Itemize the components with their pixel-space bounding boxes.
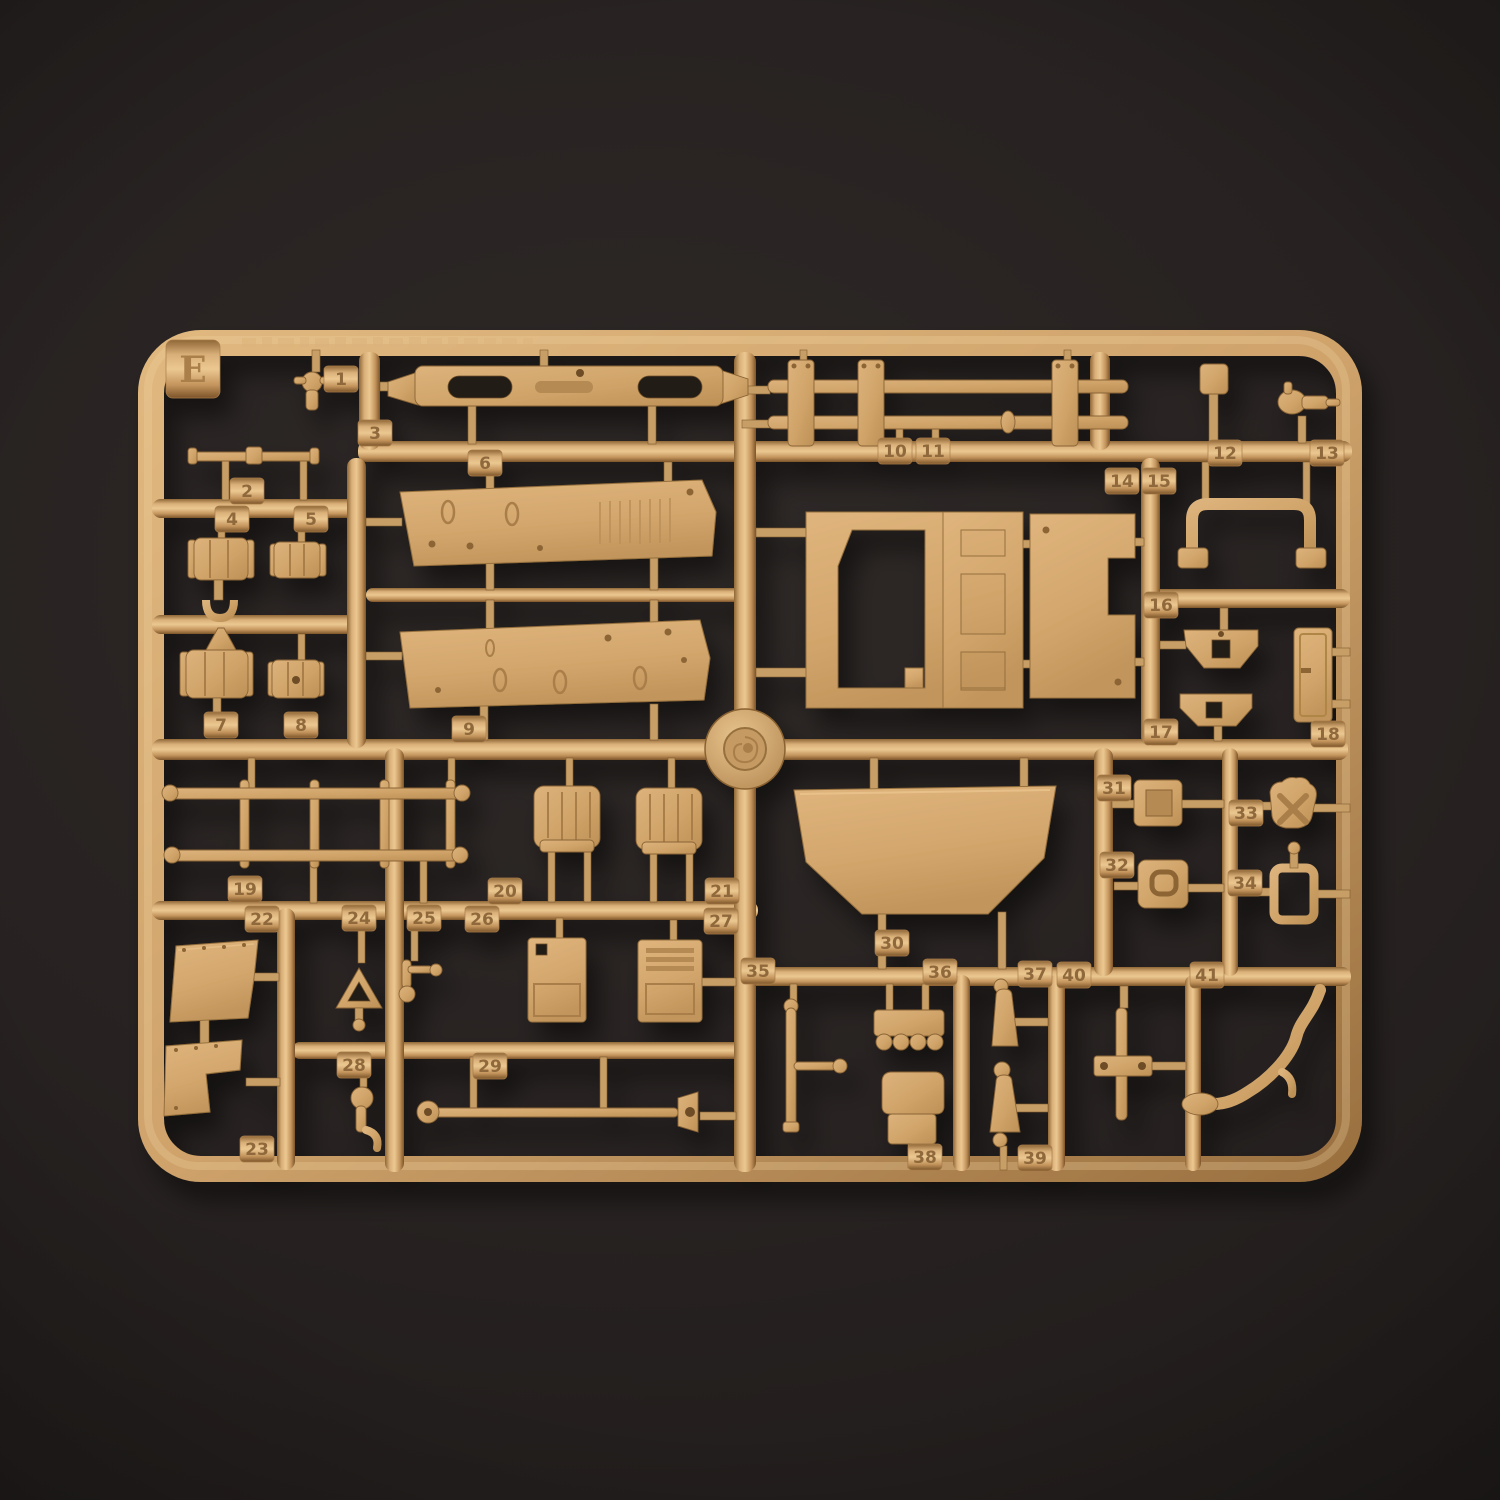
part-hull-panel-lower — [400, 620, 710, 708]
runner-segment — [347, 458, 366, 748]
part-number-tab: 21 — [705, 878, 739, 904]
part-warning-triangle — [336, 968, 382, 1031]
part-number-tab: 17 — [1144, 719, 1178, 745]
part-number-tab: 32 — [1100, 852, 1134, 878]
part-number-label: 27 — [709, 912, 733, 932]
part-number-label: 7 — [215, 716, 227, 736]
part-number-tab: 18 — [1311, 721, 1345, 747]
part-figure-lever-upper — [992, 979, 1018, 1046]
part-number-tab: 1 — [324, 366, 358, 392]
part-bumper-beam — [388, 366, 748, 406]
part-floor-plate — [794, 786, 1056, 914]
part-number-label: 25 — [412, 909, 436, 929]
part-seat-20 — [534, 786, 600, 852]
part-number-label: 4 — [226, 510, 238, 530]
photo-background: E — [0, 0, 1500, 1500]
part-number-tab: 13 — [1310, 440, 1344, 466]
part-number-tab: 36 — [923, 959, 957, 985]
part-chassis-rails — [768, 360, 1128, 446]
runner-segment — [1090, 352, 1110, 450]
part-figure-lever-lower — [990, 1062, 1020, 1147]
part-number-tab: 41 — [1190, 962, 1224, 988]
part-number-tab: 24 — [342, 905, 376, 931]
part-box-32 — [1138, 860, 1188, 908]
part-mudguard-upper — [170, 940, 258, 1022]
part-number-tab: 30 — [875, 930, 909, 956]
part-number-tab: 27 — [704, 908, 738, 934]
part-number-tab: 40 — [1057, 962, 1091, 988]
part-door — [1294, 628, 1332, 722]
runner-segment — [1048, 975, 1065, 1171]
part-number-label: 3 — [369, 424, 381, 444]
part-number-tab: 7 — [204, 712, 238, 738]
runner-segment — [1222, 748, 1238, 976]
part-bracket-12 — [1200, 364, 1228, 394]
part-number-tab: 33 — [1229, 800, 1263, 826]
part-number-tab: 10 — [878, 438, 912, 464]
part-panel-box-26 — [528, 938, 586, 1022]
part-number-label: 36 — [928, 963, 952, 983]
part-number-tab: 8 — [284, 712, 318, 738]
part-lever-rod-35 — [783, 999, 847, 1132]
part-number-label: 16 — [1149, 596, 1173, 616]
part-winch-13 — [1278, 382, 1340, 414]
part-number-label: 37 — [1023, 965, 1047, 985]
part-number-label: 22 — [250, 910, 274, 930]
part-number-tab: 16 — [1144, 592, 1178, 618]
part-drum-8 — [268, 660, 324, 698]
part-seat-21 — [636, 788, 702, 854]
part-axle-rod — [188, 447, 319, 464]
sprue-photo: E — [0, 0, 1500, 1500]
part-number-label: 10 — [883, 442, 907, 462]
part-exhaust-pipe — [1182, 990, 1320, 1115]
part-number-tab: 9 — [452, 716, 486, 742]
part-number-tab: 6 — [468, 450, 502, 476]
gate-center — [743, 743, 753, 753]
part-box-31 — [1134, 780, 1182, 826]
part-number-tab: 4 — [215, 506, 249, 532]
part-number-tab: 29 — [473, 1053, 507, 1079]
part-mudguard-lower — [164, 1040, 242, 1116]
part-number-label: 17 — [1149, 723, 1173, 743]
part-number-label: 20 — [493, 882, 517, 902]
part-number-tab: 25 — [407, 905, 441, 931]
part-number-label: 28 — [342, 1056, 366, 1076]
part-roller-cart-36 — [874, 1010, 944, 1050]
part-number-label: 21 — [710, 882, 734, 902]
part-number-label: 41 — [1195, 966, 1219, 986]
part-number-label: 24 — [347, 909, 371, 929]
part-number-tab: 39 — [1018, 1145, 1052, 1171]
part-vent-box-27 — [638, 940, 702, 1022]
part-roll-bar — [1178, 504, 1326, 568]
part-number-label: 6 — [479, 454, 491, 474]
part-loop-34 — [1274, 842, 1314, 920]
part-number-label: 33 — [1234, 804, 1258, 824]
part-number-tab: 35 — [741, 958, 775, 984]
part-small-bracket-25 — [399, 960, 442, 1002]
part-tow-bar — [417, 1092, 698, 1132]
part-number-tab: 5 — [294, 506, 328, 532]
part-number-label: 14 — [1110, 472, 1134, 492]
runner-segment — [366, 588, 746, 602]
part-number-label: 23 — [245, 1140, 269, 1160]
part-number-tab: 15 — [1142, 468, 1176, 494]
part-cab-window-frame — [806, 512, 1023, 708]
part-drum-7 — [180, 628, 253, 712]
part-number-tab: 38 — [908, 1144, 942, 1170]
part-number-label: 12 — [1213, 444, 1237, 464]
sprue-gate-circle — [705, 709, 785, 789]
part-number-label: 31 — [1102, 779, 1126, 799]
part-number-tab: 26 — [465, 906, 499, 932]
part-number-label: 26 — [470, 910, 494, 930]
part-number-label: 30 — [880, 934, 904, 954]
part-number-label: 15 — [1147, 472, 1171, 492]
part-bracket-17 — [1180, 694, 1252, 726]
part-ladder-frame — [162, 780, 470, 868]
sprue-letter: E — [179, 349, 206, 391]
runner-segment — [358, 441, 1352, 462]
part-number-tab: 14 — [1105, 468, 1139, 494]
part-number-label: 2 — [241, 482, 253, 502]
part-number-label: 35 — [746, 962, 770, 982]
part-number-tab: 11 — [916, 438, 950, 464]
part-number-label: 5 — [305, 510, 317, 530]
part-seat-back-38 — [882, 1072, 944, 1144]
part-side-plate — [1030, 514, 1135, 698]
part-number-label: 11 — [921, 442, 945, 462]
part-number-label: 8 — [295, 716, 307, 736]
part-cross-mount-40 — [1094, 1008, 1152, 1120]
part-number-label: 1 — [335, 370, 347, 390]
part-number-tab: 31 — [1097, 775, 1131, 801]
part-number-tab: 3 — [358, 420, 392, 446]
part-number-label: 32 — [1105, 856, 1129, 876]
part-number-tab: 37 — [1018, 961, 1052, 987]
part-number-label: 18 — [1316, 725, 1340, 745]
part-number-label: 13 — [1315, 444, 1339, 464]
part-number-tab: 28 — [337, 1052, 371, 1078]
part-bracket-16 — [1184, 630, 1258, 668]
part-number-label: 34 — [1233, 874, 1257, 894]
runner-segment — [1185, 975, 1201, 1171]
part-number-label: 19 — [233, 880, 257, 900]
part-number-tab: 34 — [1228, 870, 1262, 896]
runner-segment — [953, 975, 970, 1171]
runner-segment — [152, 901, 758, 920]
part-shield-33 — [1270, 778, 1316, 829]
part-number-label: 39 — [1023, 1149, 1047, 1169]
part-number-tab: 12 — [1208, 440, 1242, 466]
part-hull-panel-upper — [400, 480, 716, 566]
part-number-tab: 20 — [488, 878, 522, 904]
part-hook-28 — [351, 1087, 378, 1148]
part-drum-4 — [188, 538, 254, 618]
part-number-label: 40 — [1062, 966, 1086, 986]
sprue-letter-tab: E — [166, 340, 220, 398]
part-drum-5 — [270, 542, 326, 578]
part-number-label: 9 — [463, 720, 475, 740]
part-number-label: 38 — [913, 1148, 937, 1168]
runner-segment — [152, 615, 358, 634]
part-number-tab: 23 — [240, 1136, 274, 1162]
part-number-tab: 19 — [228, 876, 262, 902]
part-number-label: 29 — [478, 1057, 502, 1077]
runner-segment — [277, 908, 295, 1170]
part-number-tab: 2 — [230, 478, 264, 504]
part-number-tab: 22 — [245, 906, 279, 932]
